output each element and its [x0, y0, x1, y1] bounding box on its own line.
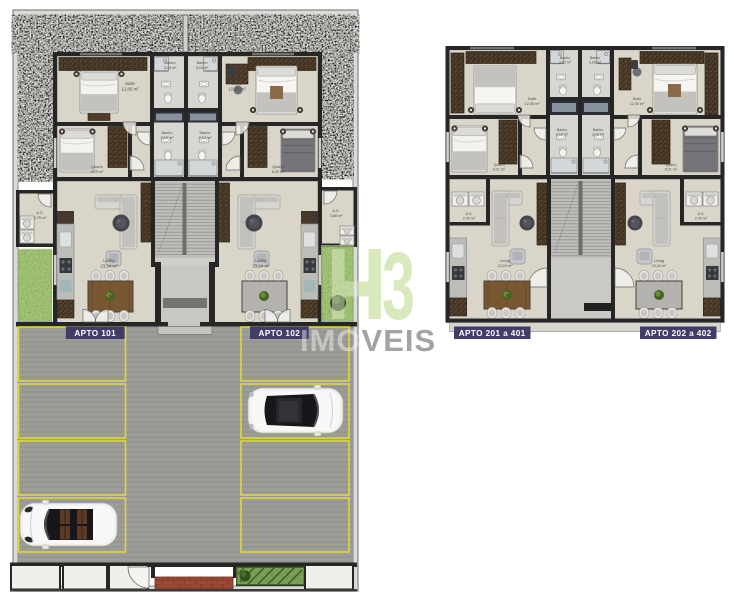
svg-text:Quarto8,25 m²: Quarto8,25 m²	[272, 165, 286, 174]
svg-text:APTO 202 a 402: APTO 202 a 402	[645, 329, 712, 338]
svg-text:Banho3,03 m²: Banho3,03 m²	[164, 61, 178, 70]
svg-text:APTO 201 a 401: APTO 201 a 401	[459, 329, 526, 338]
svg-text:Banho3,12 m²: Banho3,12 m²	[161, 131, 175, 140]
svg-text:Banho3,03 m²: Banho3,03 m²	[559, 56, 572, 65]
svg-text:Quarto8,25 m²: Quarto8,25 m²	[91, 165, 105, 174]
svg-text:Banho3,03 m²: Banho3,03 m²	[589, 56, 602, 65]
svg-text:Banho3,12 m²: Banho3,12 m²	[199, 131, 213, 140]
svg-text:APTO 102: APTO 102	[259, 329, 301, 338]
svg-text:Banho3,12 m²: Banho3,12 m²	[592, 128, 605, 137]
svg-text:Quarto8,21 m²: Quarto8,21 m²	[493, 163, 506, 172]
svg-text:Quarto8,21 m²: Quarto8,21 m²	[665, 163, 678, 172]
svg-text:Banho3,12 m²: Banho3,12 m²	[556, 128, 569, 137]
svg-text:APTO 101: APTO 101	[74, 329, 116, 338]
svg-text:Banho3,03 m²: Banho3,03 m²	[196, 61, 210, 70]
